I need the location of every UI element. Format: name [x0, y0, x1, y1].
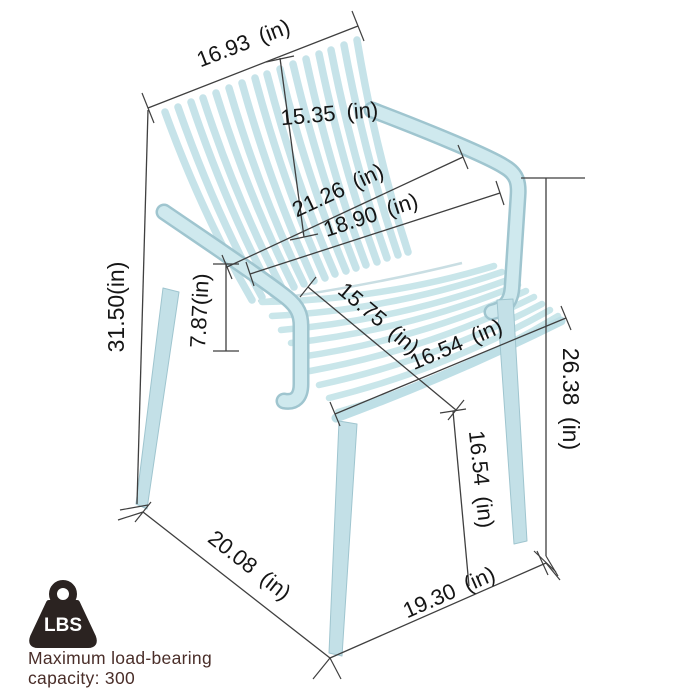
front-left-leg: [329, 421, 357, 656]
load-caption-line1: Maximum load-bearing: [28, 648, 212, 668]
dim-armrest-to-floor: 26.38 (in): [521, 178, 585, 576]
dim-label-front-leg-height: 16.54 (in): [464, 429, 499, 529]
dim-label-overall-height: 31.50(in): [103, 262, 129, 353]
load-capacity-badge: LBS Maximum load-bearing capacity: 300: [28, 584, 212, 688]
dim-label-base-depth: 20.08 (in): [203, 525, 295, 605]
dim-label-armrest-to-floor: 26.38 (in): [558, 348, 584, 450]
dim-label-base-width: 19.30 (in): [399, 561, 499, 623]
dim-front-leg-height: 16.54 (in): [440, 409, 499, 586]
dim-overall-height: 31.50(in): [103, 110, 148, 510]
product-dimension-diagram: 16.93 (in) 31.50(in) 15.35 (in) 21.26 (i…: [0, 0, 700, 700]
dim-label-armrest-above-seat: 7.87(in): [185, 273, 214, 349]
dim-label-back-width: 16.93 (in): [193, 14, 293, 72]
weight-icon-label: LBS: [44, 615, 82, 636]
load-caption-line2: capacity: 300: [28, 668, 135, 688]
dim-base-width: 19.30 (in): [330, 551, 560, 658]
